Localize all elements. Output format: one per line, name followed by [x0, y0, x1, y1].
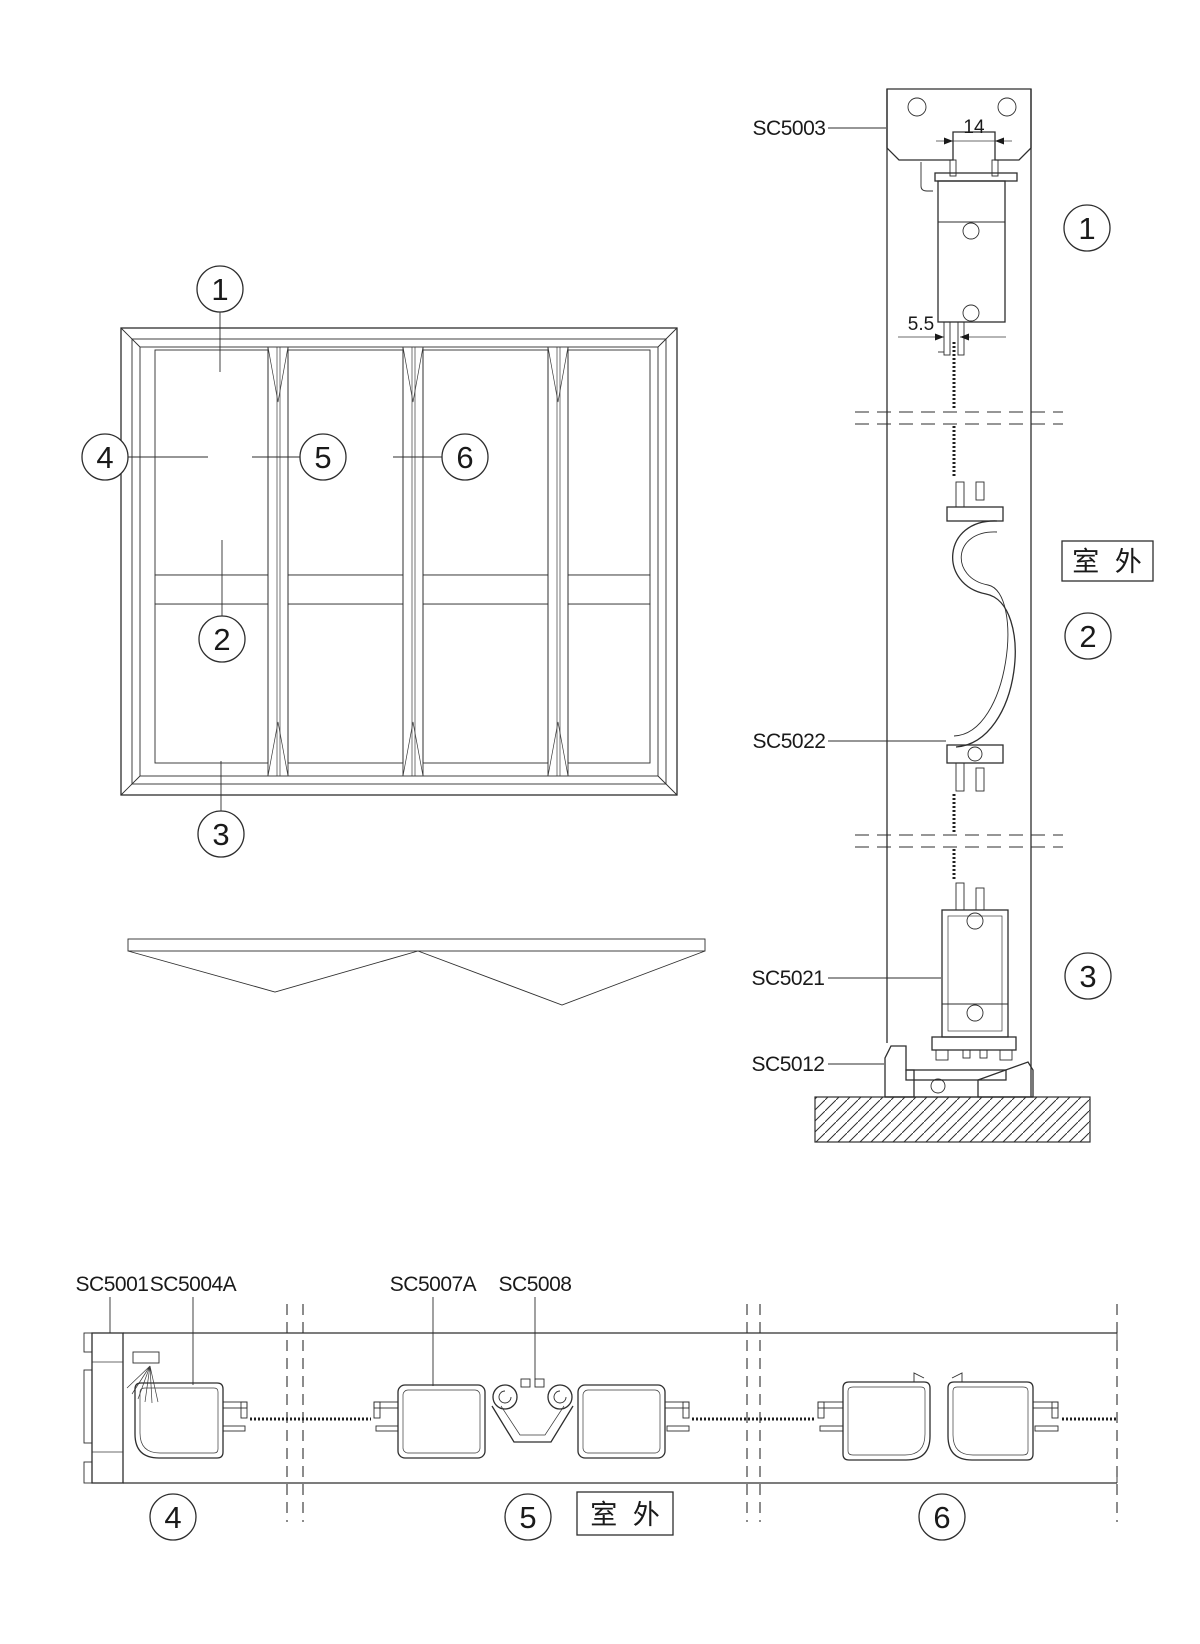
meeting-stile-sash-right [948, 1373, 1058, 1460]
plan-track-bar [128, 939, 705, 951]
mesh-panel [288, 604, 403, 763]
profile-sc5022-s-slat [947, 482, 1015, 791]
interlock-hook [914, 1373, 924, 1382]
interlock-hook [952, 1373, 962, 1382]
callout-number: 5 [314, 440, 331, 475]
profile-sc5001-jamb [84, 1333, 123, 1483]
callout-number: 4 [164, 1500, 181, 1535]
callout-number: 3 [1079, 959, 1096, 994]
frame-mitre-corners [121, 328, 677, 795]
fold-swing-right [418, 951, 705, 1005]
break-lines-lower [855, 835, 1063, 847]
callout-1-section: 1 [1064, 205, 1110, 251]
outdoor-tag-right: 室 外 [1062, 541, 1153, 581]
label-sc5001: SC5001 [76, 1273, 149, 1333]
outdoor-tag-bottom: 室 外 [577, 1492, 673, 1535]
callout-number: 2 [213, 622, 230, 657]
part-label-text: SC5022 [753, 730, 826, 753]
window-elevation-view: 1 2 3 4 5 6 [82, 266, 677, 857]
outdoor-label: 室 外 [590, 1500, 664, 1530]
callout-5-elevation: 5 [300, 434, 346, 480]
part-label-text: SC5012 [752, 1053, 825, 1076]
dim-value-5-5: 5.5 [908, 314, 934, 335]
interlock-flange-right [665, 1402, 689, 1431]
frame-inner-edge [140, 347, 658, 776]
dim-value-14: 14 [963, 117, 985, 138]
head-hook [921, 162, 933, 191]
label-sc5004a: SC5004A [150, 1273, 237, 1385]
callout-3-elevation: 3 [198, 811, 244, 857]
callout-6-elevation: 6 [442, 434, 488, 480]
mesh-panel [423, 604, 548, 763]
part-label-text: SC5001 [76, 1273, 149, 1296]
label-sc5022: SC5022 [753, 730, 946, 753]
elevation-leaders [128, 312, 442, 811]
label-sc5007a: SC5007A [390, 1273, 477, 1386]
break-lines-vertical [287, 1304, 1117, 1522]
callout-number: 4 [96, 440, 113, 475]
profile-sc5008-hinge-connector [492, 1379, 573, 1442]
break-lines-upper [855, 412, 1063, 424]
vertical-section-view: 14 5.5 [752, 89, 1153, 1142]
label-sc5003: SC5003 [753, 117, 886, 140]
fold-swing-left [128, 951, 418, 992]
callout-6-section: 6 [919, 1494, 965, 1540]
interlock-flange-left [818, 1402, 843, 1431]
mullions [268, 347, 568, 776]
part-label-text: SC5008 [499, 1273, 572, 1296]
profile-sc5007a-sash-right [578, 1385, 689, 1458]
callout-number: 1 [1078, 211, 1095, 246]
callout-number: 6 [456, 440, 473, 475]
callout-2-section: 2 [1065, 613, 1111, 659]
mullion [548, 347, 568, 776]
callout-2-elevation: 2 [199, 616, 245, 662]
horizontal-section-view: SC5001 SC5004A SC5007A SC5008 4 5 6 [76, 1273, 1117, 1540]
mesh-panel [568, 604, 650, 763]
part-label-text: SC5003 [753, 117, 826, 140]
middle-rail [155, 575, 650, 604]
sash-top-tube [935, 173, 1017, 355]
callout-number: 2 [1079, 619, 1096, 654]
callout-1-elevation: 1 [197, 266, 243, 312]
label-sc5012: SC5012 [752, 1053, 884, 1076]
mullion [268, 347, 288, 776]
mesh-panel [568, 350, 650, 575]
outdoor-label: 室 外 [1072, 547, 1146, 577]
meeting-stile-sash-left [818, 1373, 930, 1460]
label-sc5021: SC5021 [752, 967, 941, 990]
part-label-text: SC5004A [150, 1273, 237, 1296]
dimension-screen-slot: 5.5 [898, 314, 1006, 341]
mesh-panel [155, 350, 268, 575]
interlock-flange-right [1033, 1402, 1058, 1431]
callout-4-section: 4 [150, 1494, 196, 1540]
part-label-text: SC5021 [752, 967, 825, 990]
brush-seal [127, 1352, 159, 1403]
callout-number: 3 [212, 817, 229, 852]
frame-middle-edge [132, 339, 666, 784]
frame-outer-edge [121, 328, 677, 795]
callout-5-section: 5 [505, 1494, 551, 1540]
dimension-track-gap: 14 [936, 117, 1012, 145]
callout-number: 5 [519, 1500, 536, 1535]
profile-sc5007a-sash-left [374, 1385, 485, 1458]
profile-sc5021-bottom-rail [932, 883, 1016, 1060]
plan-view-folding-diagram [128, 939, 705, 1005]
drawing-canvas: 1 2 3 4 5 6 [0, 0, 1200, 1644]
profile-sc5012-sill [885, 1046, 1033, 1097]
part-label-text: SC5007A [390, 1273, 477, 1296]
profile-sc5003-head [887, 89, 1031, 191]
cad-drawing-sheet: 1 2 3 4 5 6 [0, 0, 1200, 1644]
interlock-flange-left [374, 1402, 398, 1431]
mullion [403, 347, 423, 776]
callout-4-elevation: 4 [82, 434, 128, 480]
ground-hatch [815, 1097, 1090, 1142]
interlock-flange-right [223, 1402, 247, 1431]
mesh-panels [155, 350, 650, 763]
callout-number: 6 [933, 1500, 950, 1535]
label-sc5008: SC5008 [499, 1273, 572, 1380]
callout-number: 1 [211, 272, 228, 307]
callout-3-section: 3 [1065, 953, 1111, 999]
